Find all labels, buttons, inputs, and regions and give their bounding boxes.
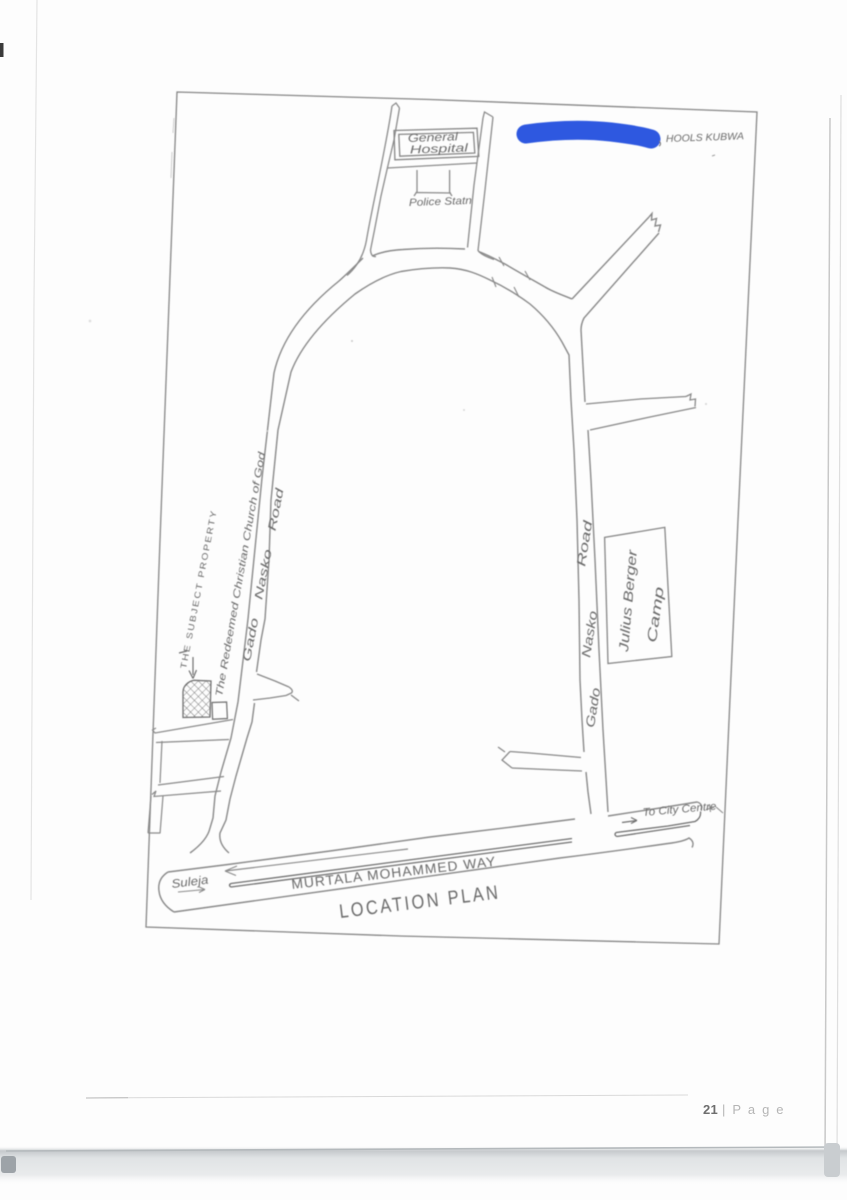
svg-text:Hospital: Hospital	[410, 142, 469, 156]
svg-text:Police Statn: Police Statn	[409, 195, 473, 209]
svg-text:To City Centre: To City Centre	[642, 801, 717, 819]
svg-text:HOOLS KUBWA: HOOLS KUBWA	[666, 131, 745, 145]
svg-text:Julius Berger: Julius Berger	[616, 549, 640, 654]
svg-text:Nasko: Nasko	[579, 610, 600, 659]
svg-text:THE SUBJECT PROPERTY: THE SUBJECT PROPERTY	[178, 508, 219, 669]
svg-text:LOCATION PLAN: LOCATION PLAN	[338, 881, 501, 923]
svg-text:Gado: Gado	[583, 687, 603, 729]
svg-text:Suleja: Suleja	[171, 873, 210, 891]
svg-text:Camp: Camp	[644, 585, 667, 643]
